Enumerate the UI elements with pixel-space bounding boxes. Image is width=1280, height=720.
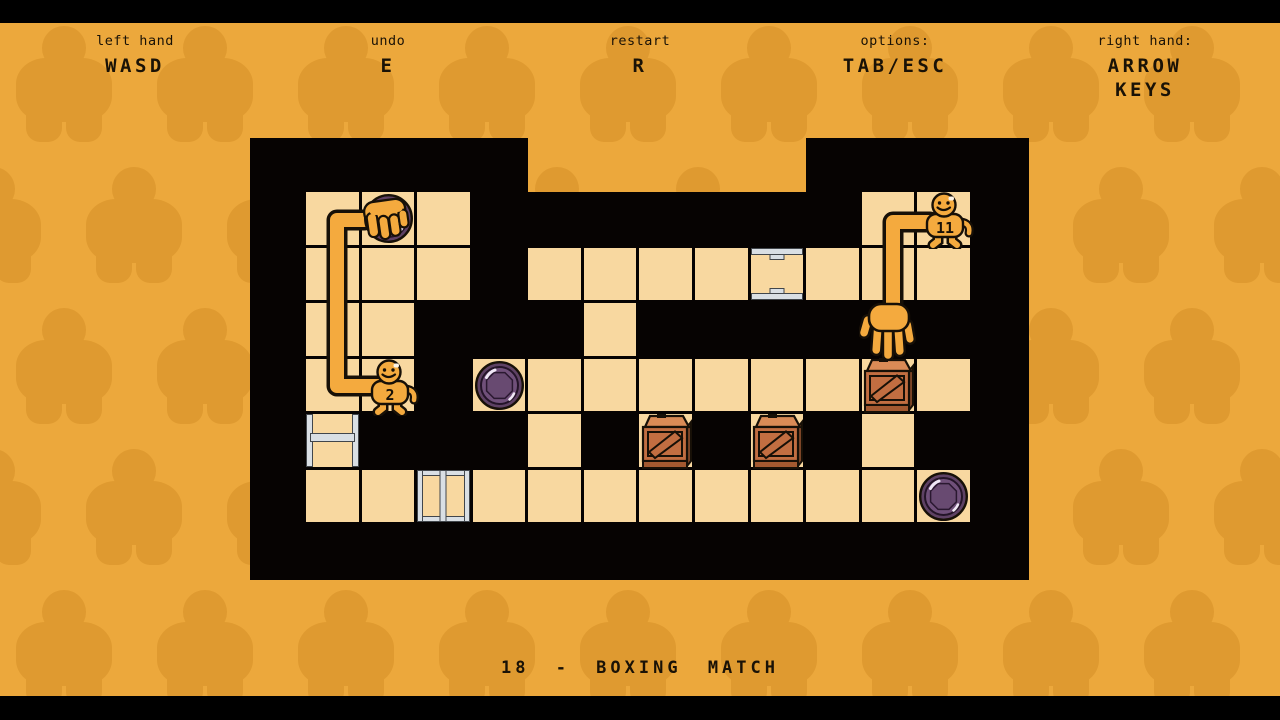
wooden-crate xyxy=(639,411,695,475)
floor-tile xyxy=(862,470,915,523)
svg-text:2: 2 xyxy=(385,386,394,404)
pattern-figure xyxy=(157,590,253,706)
control-key: E xyxy=(371,55,406,79)
floor-tile xyxy=(862,414,915,467)
gate-tile-gate-vertical xyxy=(417,470,470,523)
pattern-figure xyxy=(862,590,958,706)
game-board: 2 11 xyxy=(250,138,1029,580)
floor-tile xyxy=(917,248,970,301)
floor-tile xyxy=(584,248,637,301)
floor-tile xyxy=(806,248,859,301)
pattern-figure xyxy=(298,590,394,706)
floor-tile xyxy=(362,303,415,356)
floor-tile xyxy=(362,248,415,301)
gate-tile-gate-ladder xyxy=(306,414,359,467)
game-screen: left hand WASD undo E restart R options:… xyxy=(0,0,1280,720)
gate-tile-gate-horizontal xyxy=(751,248,804,301)
floor-tile xyxy=(862,192,915,245)
control-restart: restart R xyxy=(610,33,670,79)
control-key: R xyxy=(610,55,670,79)
pattern-figure xyxy=(16,590,112,706)
level-title: 18 - BOXING MATCH xyxy=(0,658,1280,678)
pattern-figure xyxy=(1144,308,1240,424)
control-key: WASD xyxy=(96,55,174,79)
floor-tile xyxy=(473,470,526,523)
control-key: ARROW KEYS xyxy=(1086,55,1204,103)
floor-tile xyxy=(695,248,748,301)
control-right-hand: right hand: ARROW KEYS xyxy=(1086,33,1204,103)
floor-tile xyxy=(751,359,804,412)
floor-tile xyxy=(584,470,637,523)
pattern-figure xyxy=(86,167,182,283)
purple-disc xyxy=(474,360,525,415)
pattern-figure xyxy=(1003,590,1099,706)
pattern-figure xyxy=(1214,167,1280,283)
floor-tile xyxy=(528,414,581,467)
floor-tile xyxy=(306,192,359,245)
floor-tile xyxy=(639,248,692,301)
floor-tile xyxy=(306,303,359,356)
pattern-figure xyxy=(1073,167,1169,283)
floor-tile xyxy=(639,470,692,523)
letterbox-top xyxy=(0,0,1280,23)
svg-text:11: 11 xyxy=(936,219,954,237)
pattern-figure xyxy=(1003,26,1099,142)
control-label: left hand xyxy=(96,33,174,49)
control-left-hand: left hand WASD xyxy=(96,33,174,79)
floor-tile xyxy=(806,359,859,412)
pattern-figure xyxy=(439,590,535,706)
floor-tile xyxy=(528,470,581,523)
pattern-figure xyxy=(0,449,41,565)
player-character-2: 2 xyxy=(365,359,423,420)
pattern-figure xyxy=(1073,449,1169,565)
pattern-figure xyxy=(16,308,112,424)
floor-tile xyxy=(806,470,859,523)
pattern-figure xyxy=(580,590,676,706)
floor-tile xyxy=(584,359,637,412)
pattern-figure xyxy=(1214,449,1280,565)
control-key: TAB/ESC xyxy=(843,55,948,79)
floor-tile xyxy=(362,470,415,523)
floor-tile xyxy=(417,248,470,301)
pattern-figure xyxy=(86,449,182,565)
floor-tile xyxy=(584,303,637,356)
control-label: undo xyxy=(371,33,406,49)
letterbox-bottom xyxy=(0,696,1280,720)
floor-tile xyxy=(917,359,970,412)
floor-tile xyxy=(639,359,692,412)
left-hand-sprite xyxy=(360,195,412,249)
floor-tile xyxy=(306,248,359,301)
control-label: options: xyxy=(843,33,948,49)
floor-tile xyxy=(306,470,359,523)
pattern-figure xyxy=(721,590,817,706)
purple-disc xyxy=(918,471,969,526)
control-undo: undo E xyxy=(371,33,406,79)
control-label: right hand: xyxy=(1086,33,1204,49)
floor-tile xyxy=(695,359,748,412)
floor-tile xyxy=(306,359,359,412)
pattern-figure xyxy=(1144,590,1240,706)
wooden-crate xyxy=(861,355,917,419)
floor-tile xyxy=(751,470,804,523)
pattern-figure xyxy=(0,167,41,283)
floor-tile xyxy=(417,192,470,245)
floor-tile xyxy=(862,248,915,301)
player-character-11: 11 xyxy=(920,192,978,253)
floor-tile xyxy=(528,359,581,412)
control-options: options: TAB/ESC xyxy=(843,33,948,79)
control-label: restart xyxy=(610,33,670,49)
wooden-crate xyxy=(750,411,806,475)
floor-tile xyxy=(695,470,748,523)
floor-tile xyxy=(528,248,581,301)
right-hand-sprite xyxy=(859,302,919,365)
pattern-figure xyxy=(721,26,817,142)
pattern-figure xyxy=(439,26,535,142)
pattern-figure xyxy=(157,308,253,424)
